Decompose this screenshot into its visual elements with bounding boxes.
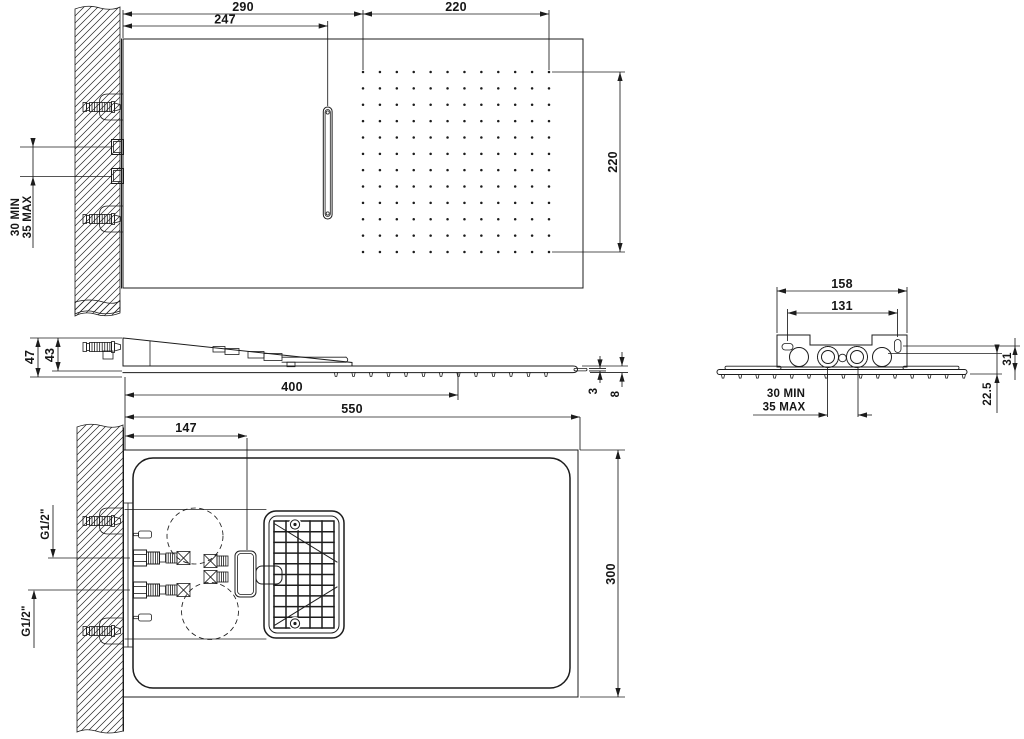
rear-view: 158 131 31 22.5 30 MIN 35 MAX (717, 277, 1020, 418)
wall-hatch-bottom (77, 424, 123, 733)
dim-550: 550 (341, 402, 362, 416)
mounting-bracket (777, 335, 907, 367)
screw-bottom (289, 617, 302, 630)
side-view: 47 43 400 3 8 (23, 338, 628, 400)
screw-hole-right (873, 348, 892, 367)
spray-plate-side (123, 366, 578, 373)
dim-220-height: 220 (606, 151, 620, 172)
plate-rear (717, 370, 967, 375)
spray-nozzle-grid (362, 71, 550, 254)
dim-131: 131 (831, 299, 852, 313)
screw-hole-left (790, 348, 809, 367)
side-dimensions: 47 43 400 3 8 (23, 338, 628, 400)
dim-220-width: 220 (445, 0, 466, 14)
spout-lip (574, 368, 587, 371)
dim-147: 147 (175, 421, 196, 435)
dim-300: 300 (604, 563, 618, 584)
dim-22-5: 22.5 (982, 382, 994, 406)
check-valves (166, 552, 228, 597)
wall-hatch-top (75, 6, 120, 314)
hose-coil-upper (167, 508, 223, 564)
mounting-strip (124, 503, 133, 647)
inlet-right (847, 347, 868, 368)
dim-400: 400 (281, 380, 302, 394)
locating-pins (134, 531, 152, 621)
dim-3: 3 (588, 388, 600, 395)
wall-anchor-side (83, 342, 121, 353)
slot-left (782, 344, 793, 351)
dim-43: 43 (43, 348, 57, 362)
waterfall-cartridge (264, 511, 344, 638)
dim-30min-front: 30 MIN (10, 198, 22, 236)
shower-plate-outline (123, 39, 583, 288)
inlet-connector-lower (134, 582, 166, 598)
body-wedge (123, 338, 352, 366)
screw-top (289, 518, 302, 531)
dim-31: 31 (1002, 352, 1014, 366)
dim-35max-rear: 35 MAX (763, 402, 806, 414)
nozzle-ticks-side (334, 373, 547, 377)
thread-label-lower: G1/2" (21, 605, 33, 636)
inlet-left (818, 347, 839, 368)
inlet-connector-upper (134, 550, 166, 566)
overall-length-dimension: 550 (125, 377, 580, 450)
technical-drawing: 290 247 220 220 30 MIN 35 MAX (0, 0, 1024, 739)
hose-coil-lower (182, 583, 239, 640)
dim-35max-front: 35 MAX (22, 196, 34, 239)
center-pin (839, 354, 847, 362)
dim-158: 158 (831, 277, 852, 291)
body-outline-plan (133, 458, 570, 688)
dim-8: 8 (610, 390, 622, 397)
slot-right (895, 340, 902, 353)
dim-247: 247 (214, 13, 235, 27)
dim-30min-rear: 30 MIN (767, 388, 805, 400)
thread-label-upper: G1/2" (40, 508, 52, 539)
waterfall-slot (323, 107, 332, 219)
nozzle-ticks-rear (721, 375, 965, 379)
dim-47: 47 (23, 350, 37, 364)
